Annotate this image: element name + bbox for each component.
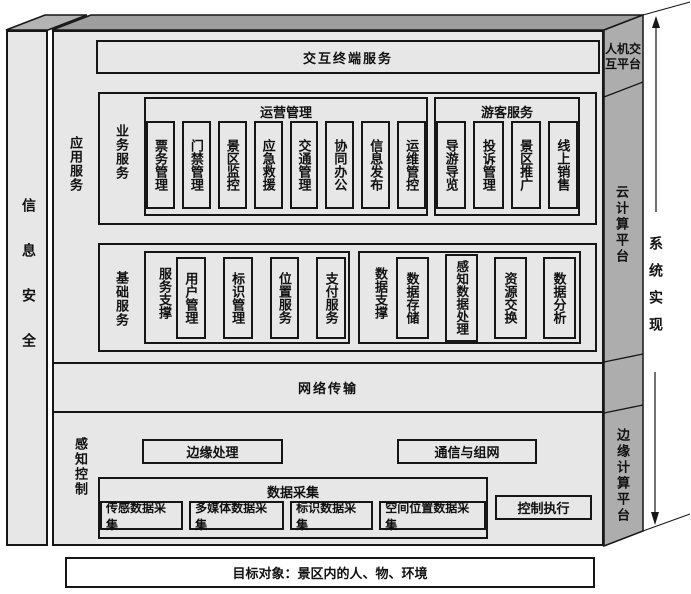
- down-arrow-head: [651, 512, 659, 525]
- collection-box-sensor: 传感数据采集: [100, 501, 183, 530]
- cloud-platform-label: 云计算平台: [615, 185, 628, 265]
- data-collection-items-row: 传感数据采集 多媒体数据采集 标识数据采集 空间位置数据采集: [100, 501, 486, 530]
- service-support-items-row: 用户管理 标识管理 位置服务 支付服务: [176, 253, 346, 342]
- service-box-label: 感知数据处理: [455, 260, 468, 335]
- service-box-label: 数据存储: [406, 272, 419, 324]
- service-support-label: 服务支撑: [158, 267, 171, 319]
- service-box-label: 位置服务: [278, 272, 291, 324]
- top-leader-line: [643, 2, 690, 15]
- service-box-label: 交通管理: [297, 139, 310, 191]
- main-top-face: [52, 15, 643, 30]
- collection-box-spatial: 空间位置数据采集: [379, 501, 486, 530]
- data-support-box: 数据支撑 数据存储 感知数据处理 资源交换 数据分析: [358, 251, 581, 344]
- terminal-services-label: 交互终端服务: [303, 48, 393, 67]
- service-box-payment: 支付服务: [316, 257, 346, 339]
- network-transmission-band: 网络传输: [54, 362, 602, 413]
- collection-box-identifier: 标识数据采集: [290, 501, 373, 530]
- service-box-label: 票务管理: [154, 139, 167, 191]
- service-box-label: 运维管控: [405, 139, 418, 191]
- service-box-label: 资源交换: [504, 272, 517, 324]
- perception-control-label: 感知控制: [74, 437, 87, 497]
- operation-management-box: 运营管理 票务管理 门禁管理 景区监控 应急救援 交通管理 协同办公 信息发布 …: [144, 97, 428, 216]
- service-box-sensing-data-processing: 感知数据处理: [445, 254, 478, 342]
- service-box-label: 应急救援: [262, 139, 275, 191]
- service-box-guide: 导游导览: [436, 121, 466, 209]
- service-box-resource-exchange: 资源交换: [494, 257, 527, 339]
- bottom-leader-line: [643, 514, 690, 531]
- data-support-label: 数据支撑: [374, 267, 387, 319]
- operation-items-row: 票务管理 门禁管理 景区监控 应急救援 交通管理 协同办公 信息发布 运维管控: [146, 121, 426, 209]
- up-arrow-head: [652, 16, 660, 28]
- service-box-user-mgmt: 用户管理: [176, 257, 206, 339]
- service-box-label: 景区监控: [226, 139, 239, 191]
- edge-processing-label: 边缘处理: [186, 442, 238, 461]
- hmi-platform-text: 人机交互平台: [605, 42, 641, 72]
- visitor-items-row: 导游导览 投诉管理 景区推广 线上销售: [436, 121, 578, 209]
- service-box-label: 协同办公: [333, 139, 346, 191]
- edge-platform-label: 边缘计算平台: [616, 428, 629, 524]
- service-box-ticketing: 票务管理: [146, 121, 175, 209]
- business-services-box: 业务服务 运营管理 票务管理 门禁管理 景区监控 应急救援 交通管理 协同办公 …: [98, 92, 597, 225]
- security-pillar: 信息安全: [6, 30, 48, 546]
- control-execution-box: 控制执行: [495, 495, 592, 520]
- service-box-access-control: 门禁管理: [182, 121, 211, 209]
- service-box-monitoring: 景区监控: [218, 121, 247, 209]
- foundation-services-label: 基础服务: [115, 271, 128, 327]
- collection-box-multimedia: 多媒体数据采集: [189, 501, 284, 530]
- network-transmission-label: 网络传输: [298, 378, 358, 397]
- service-box-label: 景区推广: [519, 139, 532, 191]
- visitor-services-box: 游客服务 导游导览 投诉管理 景区推广 线上销售: [434, 97, 580, 216]
- data-support-items-row: 数据存储 感知数据处理 资源交换 数据分析: [394, 253, 577, 342]
- security-label: 信息安全: [20, 198, 34, 378]
- service-box-label: 投诉管理: [482, 139, 495, 191]
- service-box-label: 数据分析: [553, 272, 566, 324]
- service-box-complaint: 投诉管理: [473, 121, 503, 209]
- service-box-label: 信息发布: [369, 139, 382, 191]
- target-objects-box: 目标对象：景区内的人、物、环境: [65, 557, 595, 588]
- service-box-label: 支付服务: [325, 272, 338, 324]
- foundation-services-box: 基础服务 服务支撑 用户管理 标识管理 位置服务 支付服务 数据支撑 数据存储 …: [98, 243, 597, 352]
- collection-box-label: 标识数据采集: [296, 499, 367, 533]
- data-collection-box: 数据采集 传感数据采集 多媒体数据采集 标识数据采集 空间位置数据采集: [98, 477, 488, 539]
- service-box-info-publish: 信息发布: [361, 121, 390, 209]
- communication-networking-label: 通信与组网: [434, 442, 499, 461]
- visitor-services-label: 游客服务: [436, 102, 578, 121]
- service-box-data-storage: 数据存储: [396, 257, 429, 339]
- collection-box-label: 传感数据采集: [106, 499, 177, 533]
- collection-box-label: 多媒体数据采集: [195, 499, 278, 533]
- communication-networking-box: 通信与组网: [397, 439, 537, 464]
- main-face: 交互终端服务 应用服务 业务服务 运营管理 票务管理 门禁管理 景区监控 应急救…: [52, 30, 604, 546]
- collection-box-label: 空间位置数据采集: [385, 499, 480, 533]
- business-services-label: 业务服务: [115, 124, 128, 180]
- terminal-services-banner: 交互终端服务: [96, 40, 600, 74]
- edge-processing-box: 边缘处理: [142, 439, 283, 464]
- service-support-box: 服务支撑 用户管理 标识管理 位置服务 支付服务: [144, 251, 350, 344]
- service-box-id-mgmt: 标识管理: [223, 257, 253, 339]
- target-objects-label: 目标对象：景区内的人、物、环境: [232, 563, 427, 582]
- service-box-emergency: 应急救援: [254, 121, 283, 209]
- service-box-label: 导游导览: [445, 139, 458, 191]
- service-box-online-sales: 线上销售: [548, 121, 578, 209]
- service-box-traffic: 交通管理: [290, 121, 319, 209]
- service-box-label: 用户管理: [184, 272, 197, 324]
- application-layer-label: 应用服务: [69, 136, 82, 192]
- architecture-diagram: 信息安全 交互终端服务 应用服务 业务服务 运营管理 票务管理 门禁管理 景区监…: [0, 0, 691, 594]
- service-box-data-analysis: 数据分析: [543, 257, 576, 339]
- system-implementation-label: 系统实现: [647, 236, 661, 344]
- service-box-promotion: 景区推广: [511, 121, 541, 209]
- service-box-label: 线上销售: [556, 139, 569, 191]
- service-box-label: 门禁管理: [190, 139, 203, 191]
- service-box-ops-control: 运维管控: [397, 121, 426, 209]
- operation-management-label: 运营管理: [146, 102, 426, 121]
- service-box-location: 位置服务: [270, 257, 300, 339]
- control-execution-label: 控制执行: [517, 498, 569, 517]
- service-box-collaboration: 协同办公: [325, 121, 354, 209]
- hmi-platform-label: 人机交互平台: [605, 32, 641, 82]
- service-box-label: 标识管理: [231, 272, 244, 324]
